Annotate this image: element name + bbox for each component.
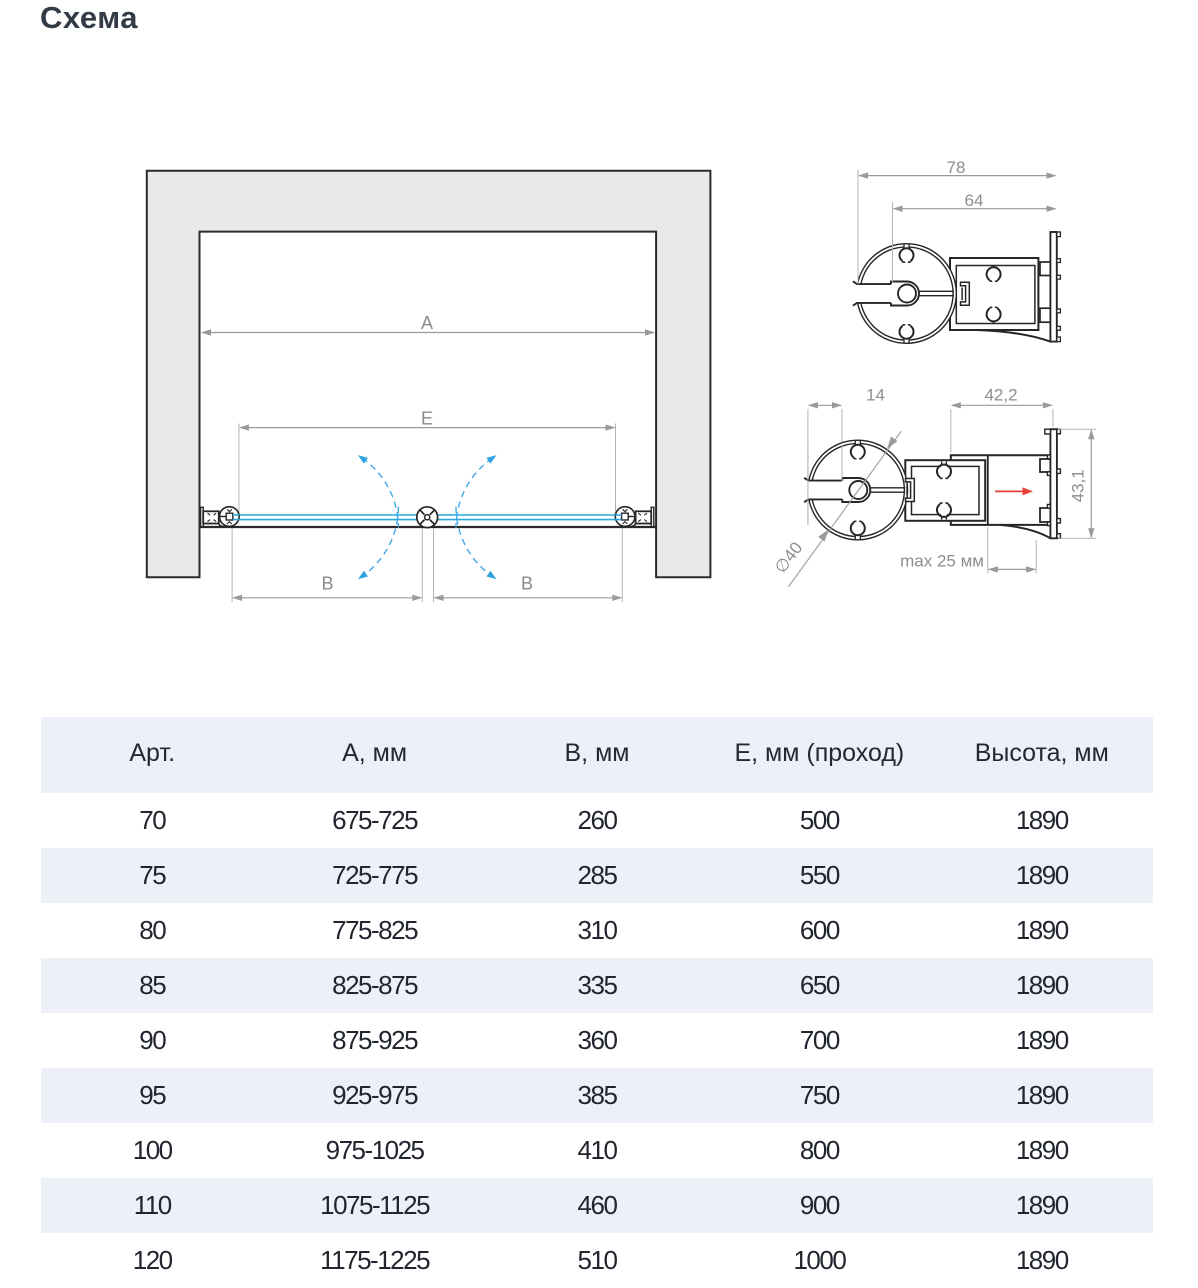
svg-text:B: B bbox=[321, 574, 333, 594]
svg-text:E: E bbox=[421, 409, 433, 429]
svg-text:∅40: ∅40 bbox=[771, 539, 806, 577]
svg-text:max 25 мм: max 25 мм bbox=[900, 551, 984, 570]
svg-text:64: 64 bbox=[965, 191, 984, 210]
svg-text:43,1: 43,1 bbox=[1069, 469, 1088, 502]
svg-text:B: B bbox=[521, 574, 533, 594]
svg-text:14: 14 bbox=[866, 386, 885, 405]
svg-text:42,2: 42,2 bbox=[984, 386, 1017, 405]
svg-text:78: 78 bbox=[947, 158, 966, 177]
svg-text:A: A bbox=[421, 313, 433, 333]
